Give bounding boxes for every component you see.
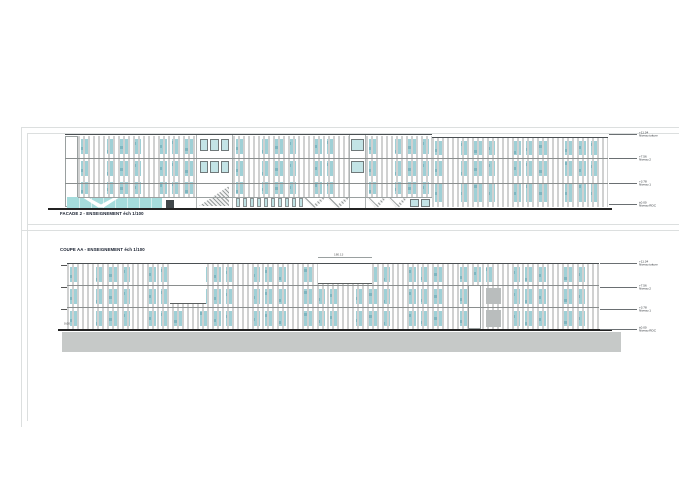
window [351,139,364,151]
window [200,139,208,151]
level-name: Niveau toiture [639,263,658,266]
facade-ground-window [243,198,247,207]
facade-slat-bottom-line [78,197,432,198]
coupe-concrete-wall [486,288,501,304]
window [200,161,208,173]
coupe-level-tick [61,309,67,310]
coupe-level-tick [61,287,67,288]
drawing-sheet: FACADE 2 - ENSEIGNEMENT éch 1/100 COUPE … [0,0,679,480]
level-leader-line [609,158,637,159]
coupe-opening [318,264,372,284]
facade-ground-window [264,198,268,207]
coupe-ground-fill [62,332,621,352]
slat-stripes [78,136,196,197]
window [351,161,364,173]
slat-stripes [432,137,608,207]
level-name: Niveau 2 [639,158,651,161]
sheet-frame-top-outer [21,127,679,128]
facade-slab-line [65,183,608,184]
drawings-render-root: +11.34Niveau toiture+7.56Niveau 2+3.78Ni… [0,0,679,480]
coupe-slab-line [67,285,599,286]
facade-v-hatch [326,197,350,208]
slat-stripes [366,136,432,197]
level-annotation: ±0.00Niveau RDC [639,201,656,207]
facade-slat-section [233,136,349,197]
facade-slat-section [366,136,432,197]
window [221,161,229,173]
level-annotation: +11.34Niveau toiture [639,260,658,266]
facade-ground-window [236,198,240,207]
facade-ground-window [271,198,275,207]
facade-slat-section-tall [432,137,608,207]
coupe-dimension-label: 180.13 [334,253,343,256]
level-name: Niveau 2 [639,287,651,290]
level-annotation: +3.78Niveau 1 [639,180,651,186]
viewport-bottom-outer [21,230,679,231]
facade-v-hatch [387,197,408,208]
facade-v-hatch [302,197,326,208]
facade-ground-window [250,198,254,207]
level-annotation: +7.56Niveau 2 [639,155,651,161]
facade-door [166,200,174,208]
facade-ground-window [299,198,303,207]
level-name: Niveau RDC [639,329,656,332]
facade-ground-window [257,198,261,207]
window [221,139,229,151]
facade-ground-line [48,208,612,210]
viewport-bottom-inner [27,224,679,225]
slat-stripes [233,136,349,197]
level-leader-line [600,287,637,288]
glazing-mullion [139,197,140,208]
level-leader-line [609,134,637,135]
coupe-level-tick [61,265,67,266]
level-leader-line [600,309,637,310]
level-name: Niveau 1 [639,183,651,186]
facade-roof-line [432,137,608,138]
facade-ground-window [285,198,289,207]
level-name: Niveau RDC [639,204,656,207]
coupe-concrete-wall [486,310,501,327]
glazing-mullion [127,197,128,208]
window [210,161,218,173]
facade-slat-section [78,136,196,197]
window [421,199,430,207]
coupe-opening [170,264,206,304]
level-annotation: ±0.00Niveau RDC [639,326,656,332]
coupe-slab-line [67,307,599,308]
level-name: Niveau toiture [639,134,658,137]
level-annotation: +7.56Niveau 2 [639,284,651,290]
level-name: Niveau 1 [639,309,651,312]
coupe-roof-line [67,263,599,264]
window [210,139,218,151]
level-leader-line [600,263,637,264]
level-annotation: +11.34Niveau toiture [639,131,658,137]
facade-v-hatch [366,197,387,208]
facade-ground-window [278,198,282,207]
level-annotation: +3.78Niveau 1 [639,306,651,312]
facade-slab-line [65,158,608,159]
coupe-ground-level-label: 0.00 [64,322,70,325]
sheet-frame-vertical-inner [27,133,28,421]
level-leader-line [600,329,637,330]
glazing-mullion [151,197,152,208]
glazing-mullion [79,197,80,208]
sheet-frame-vertical-outer [21,127,22,427]
level-leader-line [609,204,637,205]
facade-ground-window [292,198,296,207]
level-leader-line [609,183,637,184]
facade-roof-line [65,134,432,135]
window [410,199,419,207]
coupe-dimension-line [318,257,372,258]
